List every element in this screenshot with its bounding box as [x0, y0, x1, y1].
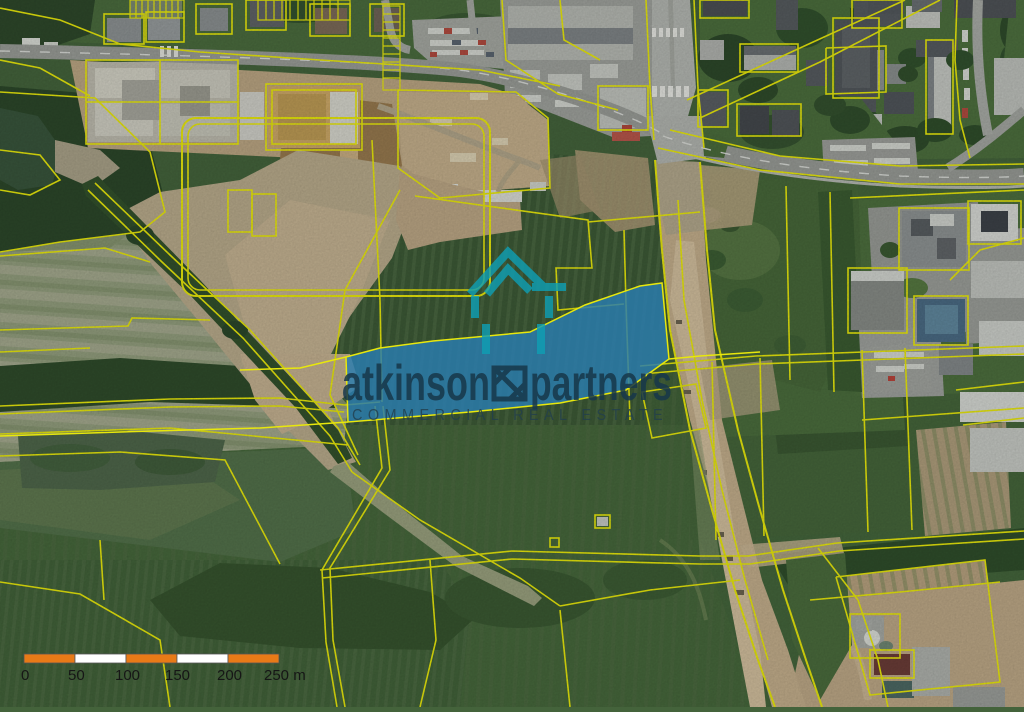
svg-text:50: 50: [68, 667, 85, 684]
svg-text:0: 0: [21, 667, 29, 684]
svg-text:atkinson: atkinson: [342, 355, 490, 411]
svg-text:250 m: 250 m: [264, 667, 306, 684]
svg-text:COMMERCIAL REAL ESTATE: COMMERCIAL REAL ESTATE: [352, 407, 668, 424]
svg-text:partners: partners: [530, 355, 672, 411]
svg-text:150: 150: [165, 667, 190, 684]
svg-text:200: 200: [217, 667, 242, 684]
svg-text:100: 100: [115, 667, 140, 684]
